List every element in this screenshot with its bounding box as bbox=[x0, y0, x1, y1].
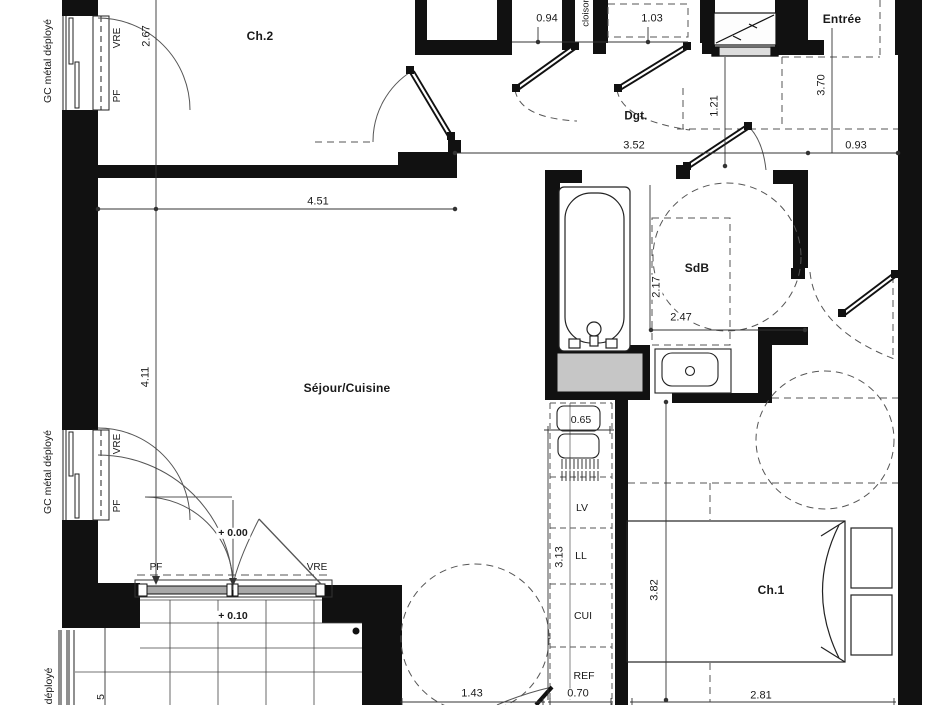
dim-entree-w: 1.21 bbox=[710, 95, 721, 116]
dim-kitchen-w: 0.70 bbox=[565, 689, 590, 700]
door-closet-b bbox=[614, 42, 691, 92]
dim-sejour-w: 4.51 bbox=[307, 197, 328, 208]
dim-sdb-v: 2.17 bbox=[652, 274, 663, 299]
dim-closet-b: 1.03 bbox=[641, 14, 662, 25]
appliance-label-ll: LL bbox=[573, 551, 589, 562]
walls bbox=[62, 0, 922, 705]
washbasin bbox=[655, 349, 731, 393]
room-label-entree: Entrée bbox=[823, 13, 862, 25]
window-label-pf-2: PF bbox=[113, 500, 123, 513]
door-closet-a bbox=[512, 42, 579, 92]
facade-label-gc-top: GC métal déployé bbox=[43, 19, 54, 103]
dim-ch2-depth: 2.67 bbox=[142, 25, 153, 46]
room-label-ch1: Ch.1 bbox=[756, 584, 787, 596]
window-label-vre-1: VRE bbox=[113, 28, 123, 49]
dim-ch1-h: 3.82 bbox=[650, 577, 661, 602]
appliance-label-lv: LV bbox=[574, 503, 590, 514]
room-label-dgt: Dgt. bbox=[624, 111, 647, 123]
balcony-drain-icon bbox=[353, 628, 360, 635]
washing-machine-block bbox=[557, 353, 643, 392]
window-ch2 bbox=[63, 16, 109, 110]
dimension-lines bbox=[96, 0, 900, 705]
plan-drawing bbox=[0, 0, 940, 705]
window-balcony-side bbox=[59, 630, 74, 705]
dim-hall-w: 3.52 bbox=[623, 141, 644, 152]
partition-label-cloison: cloison bbox=[581, 0, 591, 27]
room-label-sdb: SdB bbox=[685, 262, 710, 274]
door-ch1 bbox=[838, 270, 899, 317]
floor-plan: GC métal déployé VRE 2.67 PF Ch.2 0.94 c… bbox=[0, 0, 940, 705]
window-label-vre-3: VRE bbox=[307, 563, 328, 573]
facade-label-gc-mid: GC métal déployé bbox=[43, 430, 54, 514]
room-label-ch2: Ch.2 bbox=[247, 30, 274, 42]
dim-sdb-h: 2.47 bbox=[668, 313, 693, 324]
kitchen-drainer-hatch bbox=[562, 459, 598, 481]
dim-closet-a: 0.94 bbox=[536, 14, 557, 25]
dim-entree-h: 3.70 bbox=[817, 74, 828, 95]
dim-kitchen-h: 3.13 bbox=[555, 544, 566, 569]
dim-sink-w: 0.65 bbox=[571, 415, 591, 426]
window-sejour bbox=[63, 430, 109, 520]
door-leaves bbox=[406, 42, 899, 705]
dim-balcony-part: 5 bbox=[96, 694, 107, 700]
window-label-pf-1: PF bbox=[113, 90, 123, 103]
level-label-0: + 0.00 bbox=[216, 528, 250, 539]
facade-label-gc-bottom: déployé bbox=[44, 668, 55, 705]
window-label-vre-2: VRE bbox=[113, 434, 123, 455]
dim-hall-r: 0.93 bbox=[845, 141, 866, 152]
door-ch2 bbox=[406, 66, 455, 140]
appliance-label-cui: CUI bbox=[572, 611, 594, 622]
room-label-sejour: Séjour/Cuisine bbox=[304, 382, 391, 394]
dim-sejour-h: 4.11 bbox=[141, 367, 152, 388]
window-label-pf-3: PF bbox=[150, 563, 163, 573]
appliance-label-ref: REF bbox=[572, 671, 597, 682]
dim-sejour-bottom: 1.43 bbox=[459, 689, 484, 700]
level-label-10: + 0.10 bbox=[216, 611, 250, 622]
dim-ch1-w: 2.81 bbox=[748, 691, 773, 702]
entrance-door bbox=[712, 13, 778, 56]
bathtub bbox=[559, 187, 630, 351]
